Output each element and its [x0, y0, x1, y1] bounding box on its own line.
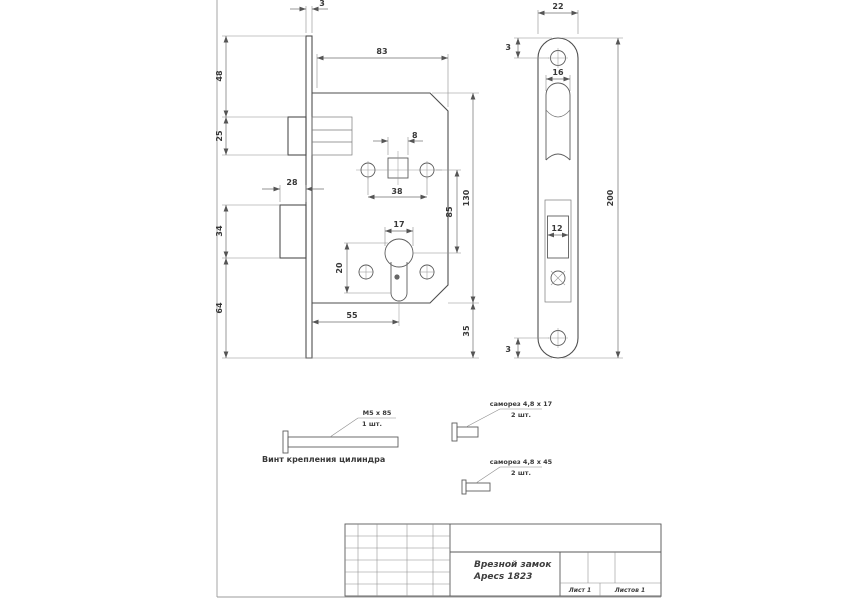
dim-body-width: 83	[376, 47, 387, 56]
title-sheet-number: Лист 1	[568, 587, 592, 594]
drawing-sheet: 3 83 48 25 34 64 28 8	[0, 0, 850, 600]
lock-case	[312, 93, 448, 303]
front-view-dimensions: 3 83 48 25 34 64 28 8	[215, 0, 479, 358]
cylinder-screw-spec: М5 х 85	[363, 409, 392, 417]
mount-screw-detail: саморез 4,8 х 45 2 шт.	[462, 458, 553, 494]
cylinder-hole	[385, 239, 413, 267]
cylinder-screw-caption: Винт крепления цилиндра	[262, 455, 385, 464]
sheet-frame	[217, 0, 661, 597]
cylinder-screw-qty: 1 шт.	[362, 420, 382, 428]
dim-deadbolt-height: 34	[215, 225, 224, 237]
cylinder-screw-hole	[394, 274, 399, 279]
faceplate-screw-qty: 2 шт.	[511, 411, 531, 419]
faceplate-outline	[538, 38, 578, 358]
dim-deadbolt-to-bottom: 64	[215, 302, 224, 314]
dim-plate-top-edge: 3	[505, 43, 511, 52]
deadbolt-cutout	[548, 216, 569, 258]
title-name-line1: Врезной замок	[474, 560, 552, 570]
dim-latch-height: 25	[215, 130, 224, 142]
latch-bolt	[288, 117, 306, 155]
dim-body-height: 130	[462, 189, 471, 206]
dim-handle-screw-span: 38	[391, 187, 403, 196]
dim-latch-cutout: 16	[552, 68, 564, 77]
title-name-line2: Apecs 1823	[473, 572, 532, 582]
dim-top-to-latch: 48	[215, 70, 224, 82]
dim-bolt-cutout: 12	[551, 224, 562, 233]
dim-backset: 55	[346, 311, 358, 320]
screw-shaft	[288, 437, 398, 447]
faceplate-view	[538, 38, 578, 358]
dim-cylinder-offset: 20	[335, 262, 344, 274]
dim-faceplate-thickness: 3	[319, 0, 325, 8]
faceplate-screw-detail: саморез 4,8 х 17 2 шт.	[452, 400, 552, 441]
faceplate-edge	[306, 36, 312, 358]
deadbolt	[280, 205, 306, 258]
title-sheets-total: Листов 1	[614, 587, 645, 594]
dim-spindle-square: 8	[412, 131, 418, 140]
faceplate-screw-spec: саморез 4,8 х 17	[490, 400, 552, 408]
faceplate-dimensions: 22 3 16 12 3 200	[505, 2, 623, 358]
dim-plate-width: 22	[552, 2, 563, 11]
mount-screw-qty: 2 шт.	[511, 469, 531, 477]
mount-screw-spec: саморез 4,8 х 45	[490, 458, 553, 466]
dim-centers: 85	[445, 206, 454, 218]
title-block: Врезной замок Apecs 1823 Лист 1 Листов 1	[345, 524, 661, 596]
cylinder-screw-detail: М5 х 85 1 шт. Винт крепления цилиндра	[262, 409, 398, 464]
dim-deadbolt-throw: 28	[286, 178, 298, 187]
dim-plate-length: 200	[606, 189, 615, 206]
dim-plate-bottom-edge: 3	[505, 345, 511, 354]
screw-head	[283, 431, 288, 453]
dim-cylinder-width: 17	[393, 220, 404, 229]
dim-body-to-plate-bottom: 35	[462, 325, 471, 337]
